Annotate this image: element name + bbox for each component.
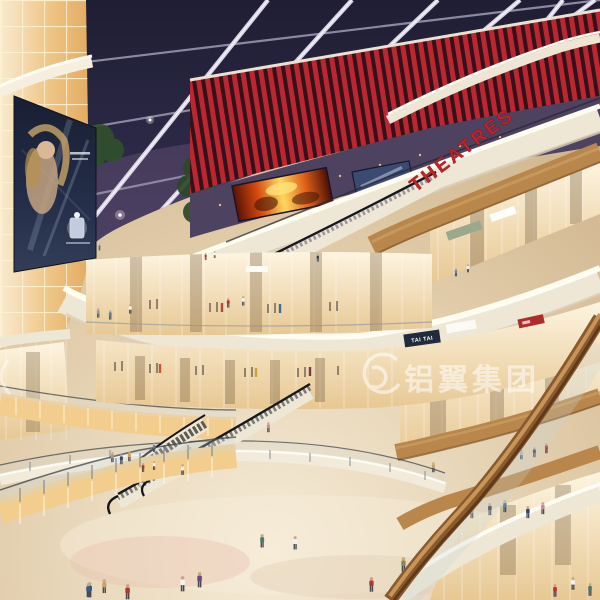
level3-storefronts [86, 246, 432, 340]
white-store-sign-mid [246, 266, 268, 272]
watermark-text: 铝翼集团 [404, 364, 540, 397]
mall-rendering-svg: THEATRES [0, 0, 600, 600]
mall-atrium-rendering: THEATRES [0, 0, 600, 600]
